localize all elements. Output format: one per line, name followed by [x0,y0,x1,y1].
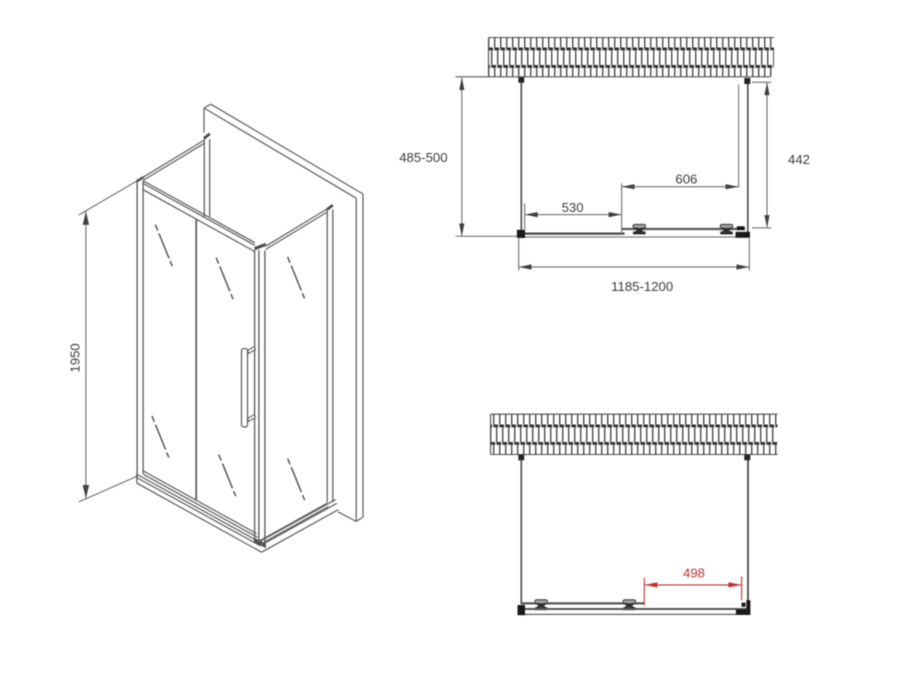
svg-text:530: 530 [562,200,584,215]
svg-text:442: 442 [788,152,810,167]
svg-text:498: 498 [683,566,705,581]
svg-text:485-500: 485-500 [399,150,447,165]
svg-text:606: 606 [675,172,697,187]
svg-text:1185-1200: 1185-1200 [611,279,673,294]
svg-text:1950: 1950 [67,343,82,372]
